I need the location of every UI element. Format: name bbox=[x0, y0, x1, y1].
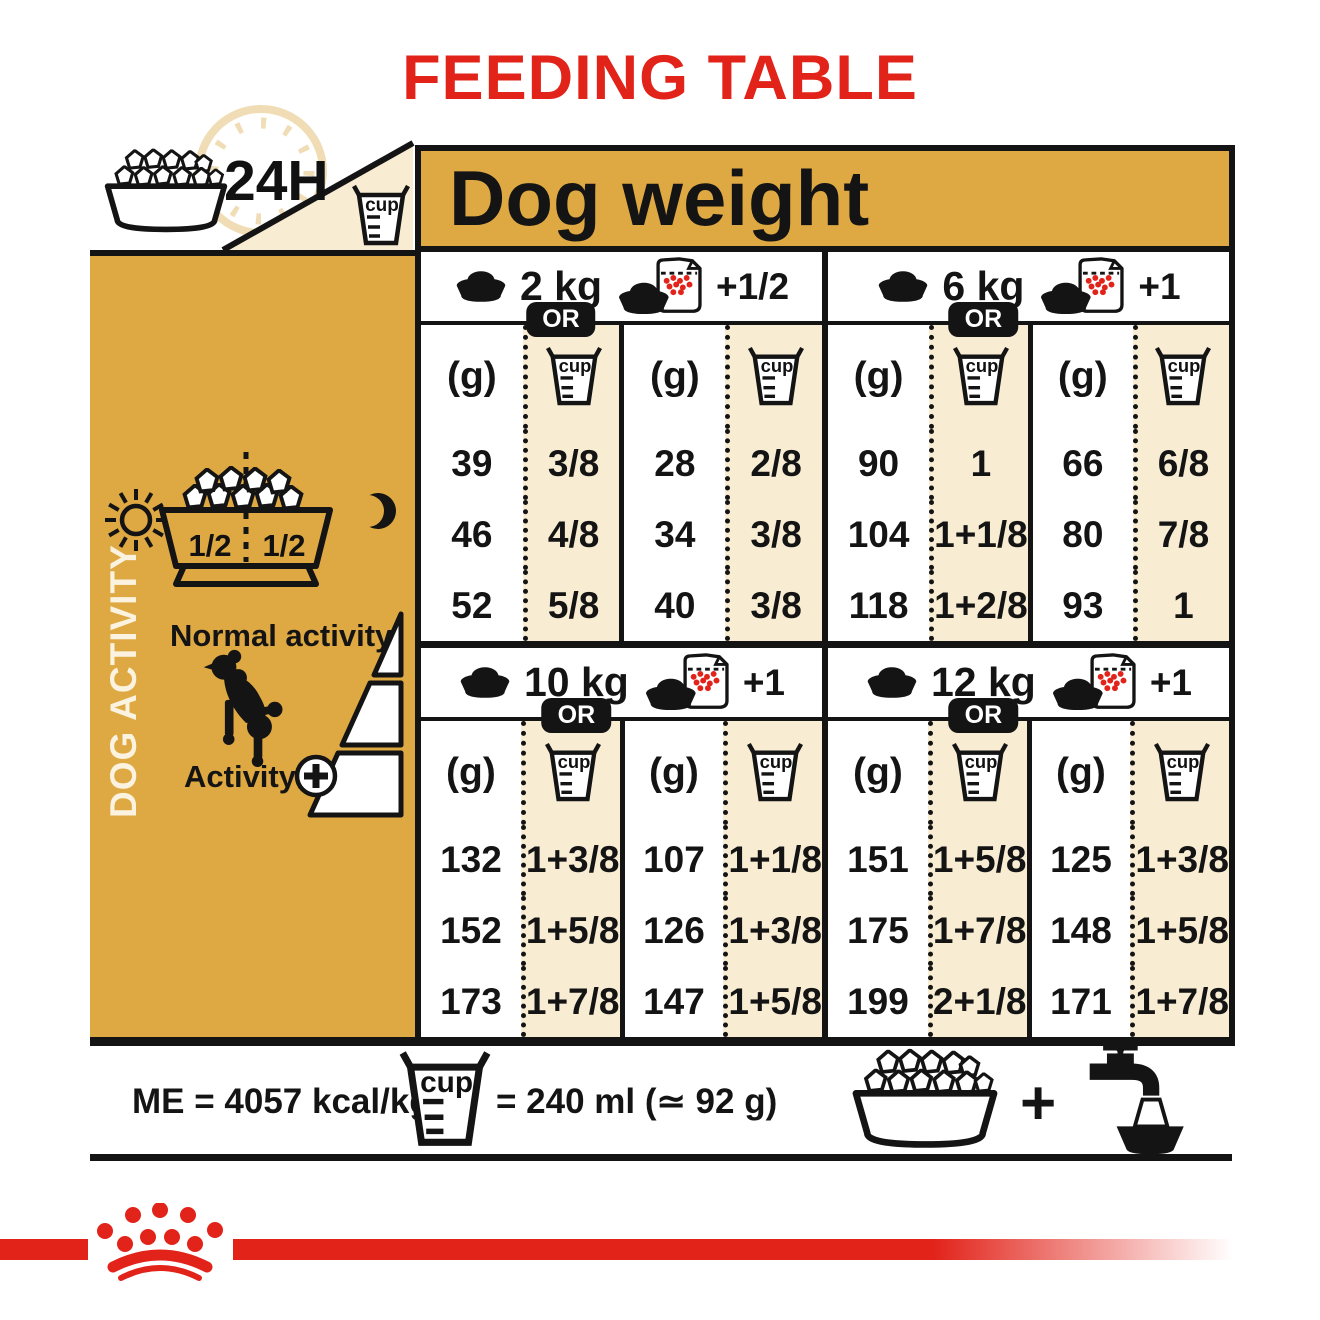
wet-add-label: +1 bbox=[1138, 266, 1180, 308]
cup-value: 1+5/8 bbox=[928, 825, 1027, 896]
wet-add-label: +1 bbox=[1150, 662, 1192, 704]
cup-icon: cup bbox=[351, 183, 411, 249]
cup-value: 1+7/8 bbox=[521, 966, 620, 1037]
cup-value: 1+1/8 bbox=[929, 500, 1028, 571]
grams-value: 148 bbox=[1027, 896, 1131, 967]
or-badge: OR bbox=[949, 302, 1019, 337]
wet-add-label: +1/2 bbox=[716, 266, 789, 308]
cup-icon: cup bbox=[1154, 345, 1212, 409]
kibble-bowl-icon bbox=[98, 146, 234, 236]
bottom-rule bbox=[90, 1154, 1232, 1161]
svg-text:cup: cup bbox=[420, 1066, 473, 1099]
feeding-table-2kg: 2 kg OR +1/2 (g) cup (g) cup 39 3/8 28 2… bbox=[421, 252, 822, 641]
grams-value: 107 bbox=[620, 825, 724, 896]
grams-value: 199 bbox=[828, 966, 928, 1037]
grams-header: (g) bbox=[421, 721, 521, 825]
grams-value: 171 bbox=[1027, 966, 1131, 1037]
cup-icon: cup bbox=[1153, 741, 1211, 805]
grams-value: 90 bbox=[828, 429, 929, 500]
activity-label: Activity bbox=[184, 759, 296, 795]
moon-icon bbox=[352, 488, 398, 534]
svg-text:cup: cup bbox=[1167, 751, 1200, 772]
grams-value: 126 bbox=[620, 896, 724, 967]
grams-value: 39 bbox=[421, 429, 523, 500]
grams-value: 52 bbox=[421, 570, 523, 641]
dry-bowl-icon bbox=[454, 270, 508, 303]
cup-header: cup bbox=[929, 325, 1028, 429]
cup-value: 1+3/8 bbox=[723, 896, 822, 967]
cup-value: 1+2/8 bbox=[929, 570, 1028, 641]
cup-value: 1 bbox=[929, 429, 1028, 500]
grams-value: 66 bbox=[1028, 429, 1133, 500]
cup-icon: cup bbox=[951, 741, 1009, 805]
plus-sign: + bbox=[1020, 1068, 1056, 1139]
grams-value: 46 bbox=[421, 500, 523, 571]
weight-label: 6 kg bbox=[942, 266, 1024, 307]
activity-plus-icon bbox=[293, 753, 339, 799]
grams-value: 93 bbox=[1028, 570, 1133, 641]
cup-value: 1+7/8 bbox=[1130, 966, 1229, 1037]
grams-value: 118 bbox=[828, 570, 929, 641]
or-badge: OR bbox=[949, 698, 1019, 733]
or-badge: OR bbox=[542, 698, 612, 733]
dry-bowl-icon bbox=[876, 270, 930, 303]
feeding-tables: 2 kg OR +1/2 (g) cup (g) cup 39 3/8 28 2… bbox=[415, 252, 1235, 1046]
cup-value: 1+7/8 bbox=[928, 896, 1027, 967]
cup-value: 1+5/8 bbox=[1130, 896, 1229, 967]
dog-activity-vertical-label: DOG ACTIVITY bbox=[100, 608, 148, 818]
weight-label: 10 kg bbox=[524, 662, 629, 703]
cup-value: 5/8 bbox=[523, 570, 620, 641]
svg-text:cup: cup bbox=[1168, 355, 1201, 376]
hours-label: 24H bbox=[224, 148, 329, 214]
bowl-pouch-icon bbox=[643, 653, 731, 712]
cup-value: 3/8 bbox=[725, 570, 822, 641]
svg-text:cup: cup bbox=[365, 195, 399, 216]
cup-value: 1+5/8 bbox=[521, 896, 620, 967]
cup-header: cup bbox=[521, 721, 620, 825]
svg-text:cup: cup bbox=[761, 355, 794, 376]
grams-header: (g) bbox=[620, 721, 724, 825]
red-stripe-right bbox=[233, 1239, 1233, 1260]
svg-text:cup: cup bbox=[558, 355, 591, 376]
weight-header-12kg: 12 kg OR +1 bbox=[828, 648, 1229, 721]
grams-header: (g) bbox=[619, 325, 725, 429]
cup-header: cup bbox=[523, 325, 620, 429]
cup-icon: cup bbox=[544, 741, 602, 805]
svg-text:1/2: 1/2 bbox=[188, 528, 231, 563]
cup-value: 7/8 bbox=[1133, 500, 1229, 571]
cup-value: 1+3/8 bbox=[521, 825, 620, 896]
cup-header: cup bbox=[1133, 325, 1229, 429]
cup-value: 3/8 bbox=[725, 500, 822, 571]
feeding-grid-6kg: (g) cup (g) cup 90 1 66 6/8 104 1+1/8 80… bbox=[828, 325, 1229, 641]
dog-activity-sidebar: 1/2 1/2 DOG ACTIVITY Normal activity Act… bbox=[90, 250, 415, 1046]
half-bowl-icon: 1/2 1/2 bbox=[142, 452, 350, 604]
grams-value: 80 bbox=[1028, 500, 1133, 571]
water-tap-icon bbox=[1074, 1040, 1186, 1160]
cup-value: 1+5/8 bbox=[723, 966, 822, 1037]
cup-header: cup bbox=[725, 325, 822, 429]
feeding-table-page: FEEDING TABLE 24H cup Dog weight 1/2 1/2… bbox=[0, 0, 1320, 1320]
grams-value: 173 bbox=[421, 966, 521, 1037]
cup-icon: cup bbox=[545, 345, 603, 409]
cup-icon: cup bbox=[952, 345, 1010, 409]
cup-value: 1+3/8 bbox=[1130, 825, 1229, 896]
grams-value: 175 bbox=[828, 896, 928, 967]
grams-value: 34 bbox=[619, 500, 725, 571]
cup-value: 3/8 bbox=[523, 429, 620, 500]
cup-value: 1+1/8 bbox=[723, 825, 822, 896]
royal-canin-crown-logo bbox=[93, 1203, 233, 1287]
grams-value: 28 bbox=[619, 429, 725, 500]
grams-value: 40 bbox=[619, 570, 725, 641]
red-stripe-left bbox=[0, 1239, 88, 1260]
grams-value: 104 bbox=[828, 500, 929, 571]
grams-value: 151 bbox=[828, 825, 928, 896]
wet-add-label: +1 bbox=[743, 662, 785, 704]
cup-volume-label: = 240 ml (≃ 92 g) bbox=[496, 1082, 777, 1122]
svg-text:cup: cup bbox=[760, 751, 793, 772]
cup-value: 1 bbox=[1133, 570, 1229, 641]
cup-header: cup bbox=[928, 721, 1027, 825]
metabolizable-energy-label: ME = 4057 kcal/kg bbox=[132, 1082, 431, 1122]
svg-text:cup: cup bbox=[964, 751, 997, 772]
kibble-bowl-icon bbox=[838, 1046, 1012, 1152]
grams-value: 147 bbox=[620, 966, 724, 1037]
grams-value: 125 bbox=[1027, 825, 1131, 896]
grams-value: 132 bbox=[421, 825, 521, 896]
feeding-grid-12kg: (g) cup (g) cup 151 1+5/8 125 1+3/8 175 … bbox=[828, 721, 1229, 1037]
cup-value: 2/8 bbox=[725, 429, 822, 500]
feeding-grid-10kg: (g) cup (g) cup 132 1+3/8 107 1+1/8 152 … bbox=[421, 721, 822, 1037]
bowl-pouch-icon bbox=[616, 257, 704, 316]
feeding-grid-2kg: (g) cup (g) cup 39 3/8 28 2/8 46 4/8 34 … bbox=[421, 325, 822, 641]
feeding-table-6kg: 6 kg OR +1 (g) cup (g) cup 90 1 66 6/8 1… bbox=[822, 252, 1229, 641]
dry-bowl-icon bbox=[458, 666, 512, 699]
grams-value: 152 bbox=[421, 896, 521, 967]
cup-header: cup bbox=[723, 721, 822, 825]
cup-value: 4/8 bbox=[523, 500, 620, 571]
bowl-pouch-icon bbox=[1050, 653, 1138, 712]
feeding-table-12kg: 12 kg OR +1 (g) cup (g) cup 151 1+5/8 12… bbox=[822, 648, 1229, 1037]
grams-header: (g) bbox=[1027, 721, 1131, 825]
dog-weight-header: Dog weight bbox=[415, 145, 1235, 252]
grams-header: (g) bbox=[828, 325, 929, 429]
bowl-pouch-icon bbox=[1038, 257, 1126, 316]
cup-icon: cup bbox=[747, 345, 805, 409]
weight-label: 12 kg bbox=[931, 662, 1036, 703]
dry-bowl-icon bbox=[865, 666, 919, 699]
weight-header-6kg: 6 kg OR +1 bbox=[828, 252, 1229, 325]
svg-text:1/2: 1/2 bbox=[262, 528, 305, 563]
weight-header-2kg: 2 kg OR +1/2 bbox=[421, 252, 822, 325]
cup-header: cup bbox=[1130, 721, 1229, 825]
grams-header: (g) bbox=[828, 721, 928, 825]
footer-info: ME = 4057 kcal/kg cup = 240 ml (≃ 92 g) … bbox=[90, 1046, 1232, 1154]
or-badge: OR bbox=[526, 302, 596, 337]
svg-text:cup: cup bbox=[966, 355, 999, 376]
svg-text:cup: cup bbox=[557, 751, 590, 772]
poodle-silhouette-icon bbox=[198, 648, 294, 768]
weight-label: 2 kg bbox=[520, 266, 602, 307]
grams-header: (g) bbox=[1028, 325, 1133, 429]
cup-value: 6/8 bbox=[1133, 429, 1229, 500]
cup-icon: cup bbox=[398, 1048, 492, 1152]
cup-value: 2+1/8 bbox=[928, 966, 1027, 1037]
feeding-table-10kg: 10 kg OR +1 (g) cup (g) cup 132 1+3/8 10… bbox=[421, 648, 822, 1037]
cup-icon: cup bbox=[746, 741, 804, 805]
grams-header: (g) bbox=[421, 325, 523, 429]
weight-header-10kg: 10 kg OR +1 bbox=[421, 648, 822, 721]
